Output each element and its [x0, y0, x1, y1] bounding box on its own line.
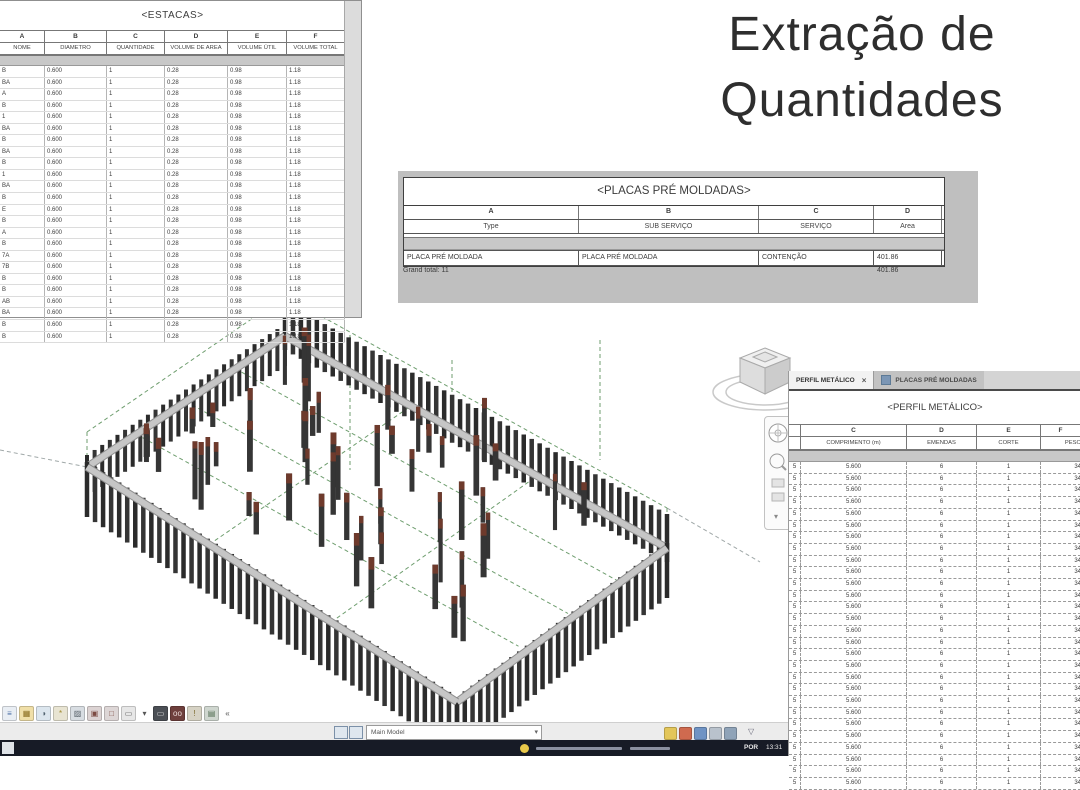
table-cell[interactable]: 0.28: [165, 124, 228, 135]
table-cell[interactable]: 5: [789, 626, 801, 637]
table-cell[interactable]: 1.18: [287, 216, 345, 227]
table-cell[interactable]: 5.600: [801, 474, 907, 485]
table-cell[interactable]: 1: [107, 112, 165, 123]
table-cell[interactable]: 6: [907, 778, 977, 789]
table-cell[interactable]: 1.18: [287, 285, 345, 296]
column-header[interactable]: VOLUME ÚTIL: [228, 43, 287, 54]
table-cell[interactable]: 1: [977, 614, 1041, 625]
table-cell[interactable]: 6: [907, 766, 977, 777]
table-cell[interactable]: BA: [0, 181, 45, 192]
table-row[interactable]: 55.6006134: [789, 532, 1080, 544]
table-cell[interactable]: 1.18: [287, 89, 345, 100]
table-cell[interactable]: 0.98: [228, 112, 287, 123]
table-row[interactable]: 55.6006134: [789, 567, 1080, 579]
table-row[interactable]: 55.6006134: [789, 684, 1080, 696]
table-cell[interactable]: 5.600: [801, 649, 907, 660]
table-cell[interactable]: 1.18: [287, 181, 345, 192]
table-cell[interactable]: 5.600: [801, 661, 907, 672]
table-cell[interactable]: 34: [1041, 778, 1080, 789]
tab-perfil-metalico[interactable]: PERFIL METÁLICO ×: [789, 371, 874, 389]
table-cell[interactable]: 6: [907, 591, 977, 602]
table-cell[interactable]: 6: [907, 602, 977, 613]
table-cell[interactable]: 0.600: [45, 66, 107, 77]
table-cell[interactable]: 0.98: [228, 101, 287, 112]
table-cell[interactable]: 5.600: [801, 591, 907, 602]
table-cell[interactable]: 34: [1041, 638, 1080, 649]
table-cell[interactable]: 6: [907, 474, 977, 485]
table-cell[interactable]: 6: [907, 521, 977, 532]
table-cell[interactable]: 5.600: [801, 696, 907, 707]
table-cell[interactable]: 5.600: [801, 497, 907, 508]
table-row[interactable]: 55.6006134: [789, 579, 1080, 591]
table-cell[interactable]: 5.600: [801, 485, 907, 496]
table-row[interactable]: B0.60010.280.981.18: [0, 332, 345, 344]
table-cell[interactable]: 7B: [0, 262, 45, 273]
table-cell[interactable]: 6: [907, 673, 977, 684]
table-cell[interactable]: 34: [1041, 649, 1080, 660]
table-cell[interactable]: 0.600: [45, 228, 107, 239]
table-row[interactable]: BA0.60010.280.981.18: [0, 124, 345, 136]
table-cell[interactable]: B: [0, 239, 45, 250]
table-cell[interactable]: 5.600: [801, 544, 907, 555]
table-cell[interactable]: 6: [907, 708, 977, 719]
table-cell[interactable]: 0.98: [228, 320, 287, 331]
table-cell[interactable]: 1: [977, 544, 1041, 555]
table-cell[interactable]: 0.28: [165, 308, 228, 319]
table-row[interactable]: B0.60010.280.981.18: [0, 66, 345, 78]
table-cell[interactable]: 0.600: [45, 205, 107, 216]
table-cell[interactable]: 1.18: [287, 170, 345, 181]
tab-placas-pre-moldadas[interactable]: PLACAS PRÉ MOLDADAS: [874, 371, 983, 389]
table-cell[interactable]: 0.600: [45, 124, 107, 135]
table-cell[interactable]: 34: [1041, 532, 1080, 543]
table-cell[interactable]: 34: [1041, 743, 1080, 754]
column-header[interactable]: SUB SERVIÇO: [579, 220, 759, 233]
table-cell[interactable]: AB: [0, 297, 45, 308]
table-cell[interactable]: 5.600: [801, 731, 907, 742]
column-header[interactable]: SERVIÇO: [759, 220, 874, 233]
table-cell[interactable]: 0.28: [165, 297, 228, 308]
table-cell[interactable]: 5: [789, 579, 801, 590]
table-cell[interactable]: 0.28: [165, 170, 228, 181]
shadows-icon[interactable]: ▨: [70, 706, 85, 721]
table-cell[interactable]: 0.600: [45, 193, 107, 204]
table-cell[interactable]: 5.600: [801, 509, 907, 520]
table-cell[interactable]: 6: [907, 485, 977, 496]
table-cell[interactable]: 0.98: [228, 78, 287, 89]
table-cell[interactable]: 1.18: [287, 297, 345, 308]
table-cell[interactable]: 5.600: [801, 462, 907, 473]
table-cell[interactable]: 1: [107, 285, 165, 296]
sun-path-icon[interactable]: *: [53, 706, 68, 721]
table-cell[interactable]: 1: [977, 708, 1041, 719]
table-cell[interactable]: 1: [977, 497, 1041, 508]
table-cell[interactable]: 5: [789, 778, 801, 789]
table-cell[interactable]: 1.18: [287, 274, 345, 285]
table-row[interactable]: 55.6006134: [789, 755, 1080, 767]
table-cell[interactable]: 34: [1041, 766, 1080, 777]
table-cell[interactable]: 1.18: [287, 124, 345, 135]
table-cell[interactable]: 0.28: [165, 112, 228, 123]
table-cell[interactable]: 0.28: [165, 239, 228, 250]
table-row[interactable]: B0.60010.280.981.18: [0, 216, 345, 228]
table-cell[interactable]: 1.18: [287, 112, 345, 123]
table-cell[interactable]: 6: [907, 661, 977, 672]
table-row[interactable]: BA0.60010.280.981.18: [0, 147, 345, 159]
table-cell[interactable]: 1: [107, 251, 165, 262]
table-cell[interactable]: 1.18: [287, 262, 345, 273]
table-cell[interactable]: 5: [789, 462, 801, 473]
table-cell[interactable]: B: [0, 193, 45, 204]
table-row[interactable]: 55.6006134: [789, 614, 1080, 626]
table-row[interactable]: A0.60010.280.981.18: [0, 89, 345, 101]
table-cell[interactable]: 0.98: [228, 228, 287, 239]
rendering-dialog-icon[interactable]: ▣: [87, 706, 102, 721]
table-cell[interactable]: B: [0, 320, 45, 331]
table-cell[interactable]: B: [0, 274, 45, 285]
table-cell[interactable]: 7A: [0, 251, 45, 262]
table-cell[interactable]: 1: [107, 147, 165, 158]
table-cell[interactable]: 5: [789, 474, 801, 485]
table-cell[interactable]: 0.28: [165, 89, 228, 100]
table-cell[interactable]: 1: [107, 205, 165, 216]
design-options-icon[interactable]: [679, 727, 692, 740]
table-cell[interactable]: 5.600: [801, 766, 907, 777]
table-cell[interactable]: 5: [789, 719, 801, 730]
table-cell[interactable]: 5: [789, 509, 801, 520]
table-cell[interactable]: 5.600: [801, 684, 907, 695]
table-row[interactable]: 7A0.60010.280.981.18: [0, 251, 345, 263]
table-cell[interactable]: 34: [1041, 521, 1080, 532]
table-cell[interactable]: 6: [907, 497, 977, 508]
table-cell[interactable]: 1: [107, 320, 165, 331]
table-cell[interactable]: 0.28: [165, 285, 228, 296]
table-cell[interactable]: 6: [907, 567, 977, 578]
table-cell[interactable]: B: [0, 135, 45, 146]
table-cell[interactable]: 6: [907, 556, 977, 567]
table-cell[interactable]: 34: [1041, 544, 1080, 555]
table-cell[interactable]: 1: [107, 101, 165, 112]
table-cell[interactable]: 0.600: [45, 170, 107, 181]
show-crop-region-icon[interactable]: ▭: [121, 706, 136, 721]
table-cell[interactable]: 5: [789, 591, 801, 602]
table-cell[interactable]: B: [0, 66, 45, 77]
table-cell[interactable]: 0.600: [45, 285, 107, 296]
table-cell[interactable]: 1.18: [287, 205, 345, 216]
table-cell[interactable]: 1.18: [287, 193, 345, 204]
table-cell[interactable]: 1: [107, 135, 165, 146]
table-cell[interactable]: 5.600: [801, 567, 907, 578]
table-cell[interactable]: 5: [789, 485, 801, 496]
table-cell[interactable]: 6: [907, 544, 977, 555]
table-cell[interactable]: 0.28: [165, 216, 228, 227]
table-cell[interactable]: 34: [1041, 626, 1080, 637]
table-cell[interactable]: 1: [977, 626, 1041, 637]
column-header[interactable]: Type: [404, 220, 579, 233]
table-cell[interactable]: 5: [789, 766, 801, 777]
table-cell[interactable]: 34: [1041, 684, 1080, 695]
table-cell[interactable]: 1: [977, 556, 1041, 567]
column-header[interactable]: VOLUME DE AREA: [165, 43, 228, 54]
table-cell[interactable]: 1: [107, 124, 165, 135]
table-row[interactable]: 10.60010.280.981.18: [0, 112, 345, 124]
table-cell[interactable]: 0.98: [228, 181, 287, 192]
table-cell[interactable]: 1: [107, 228, 165, 239]
table-cell[interactable]: 1: [977, 719, 1041, 730]
table-cell[interactable]: 5: [789, 567, 801, 578]
table-cell[interactable]: 1: [977, 649, 1041, 660]
table-cell[interactable]: A: [0, 228, 45, 239]
table-cell[interactable]: 5: [789, 532, 801, 543]
table-cell[interactable]: 1: [977, 731, 1041, 742]
table-row[interactable]: B0.60010.280.981.18: [0, 135, 345, 147]
orbit-icon[interactable]: [772, 493, 784, 501]
table-cell[interactable]: 0.600: [45, 158, 107, 169]
table-row[interactable]: 10.60010.280.981.18: [0, 170, 345, 182]
table-cell[interactable]: 34: [1041, 614, 1080, 625]
table-cell[interactable]: 0.600: [45, 147, 107, 158]
exclusions-icon[interactable]: [709, 727, 722, 740]
table-cell[interactable]: 0.28: [165, 66, 228, 77]
crop-view-icon[interactable]: □: [104, 706, 119, 721]
table-cell[interactable]: 1: [107, 297, 165, 308]
table-cell[interactable]: 1: [977, 638, 1041, 649]
table-row[interactable]: 55.6006134: [789, 521, 1080, 533]
table-cell[interactable]: 5.600: [801, 602, 907, 613]
table-cell[interactable]: 34: [1041, 509, 1080, 520]
table-row[interactable]: B0.60010.280.981.18: [0, 285, 345, 297]
table-cell[interactable]: 1: [977, 743, 1041, 754]
table-cell[interactable]: 1: [977, 684, 1041, 695]
table-cell[interactable]: 0.28: [165, 274, 228, 285]
table-cell[interactable]: 1.18: [287, 101, 345, 112]
table-cell[interactable]: 1: [977, 778, 1041, 789]
table-cell[interactable]: BA: [0, 147, 45, 158]
table-cell[interactable]: 0.28: [165, 332, 228, 343]
table-cell[interactable]: 0.98: [228, 205, 287, 216]
3d-model-view[interactable]: [0, 300, 800, 730]
table-row[interactable]: B0.60010.280.981.18: [0, 320, 345, 332]
estacas-column-headers[interactable]: NOMEDIAMETROQUANTIDADEVOLUME DE AREAVOLU…: [0, 43, 345, 55]
table-cell[interactable]: 0.28: [165, 193, 228, 204]
table-row[interactable]: 55.6006134: [789, 638, 1080, 650]
table-row[interactable]: 55.6006134: [789, 591, 1080, 603]
table-cell[interactable]: 0.98: [228, 262, 287, 273]
table-cell[interactable]: BA: [0, 308, 45, 319]
table-cell[interactable]: 0.98: [228, 66, 287, 77]
table-cell[interactable]: 5: [789, 755, 801, 766]
table-row[interactable]: 55.6006134: [789, 556, 1080, 568]
table-cell[interactable]: 5: [789, 614, 801, 625]
table-cell[interactable]: 1: [977, 567, 1041, 578]
scale-icon[interactable]: ≡: [2, 706, 17, 721]
link-monitor-icon[interactable]: [694, 727, 707, 740]
table-cell[interactable]: 5.600: [801, 638, 907, 649]
table-cell[interactable]: 6: [907, 579, 977, 590]
table-cell[interactable]: 0.600: [45, 89, 107, 100]
table-cell[interactable]: 6: [907, 462, 977, 473]
column-header[interactable]: CORTE: [977, 437, 1041, 449]
table-cell[interactable]: 1: [977, 485, 1041, 496]
table-row[interactable]: 55.6006134: [789, 766, 1080, 778]
table-cell[interactable]: 6: [907, 638, 977, 649]
table-cell[interactable]: 5: [789, 649, 801, 660]
table-row[interactable]: 55.6006134: [789, 708, 1080, 720]
collapse-bar-icon[interactable]: «: [221, 707, 234, 720]
table-cell[interactable]: 5: [789, 556, 801, 567]
table-row[interactable]: BA0.60010.280.981.18: [0, 181, 345, 193]
table-cell[interactable]: B: [0, 332, 45, 343]
table-cell[interactable]: 0.600: [45, 308, 107, 319]
table-cell[interactable]: 1.18: [287, 308, 345, 319]
table-cell[interactable]: A: [0, 89, 45, 100]
table-cell[interactable]: 1: [0, 112, 45, 123]
table-cell[interactable]: 6: [907, 731, 977, 742]
table-cell[interactable]: 34: [1041, 602, 1080, 613]
table-row[interactable]: AB0.60010.280.981.18: [0, 297, 345, 309]
table-cell[interactable]: 1.18: [287, 158, 345, 169]
column-header[interactable]: EMENDAS: [907, 437, 977, 449]
table-cell[interactable]: 1: [977, 602, 1041, 613]
table-cell[interactable]: 6: [907, 509, 977, 520]
column-header[interactable]: NOME: [0, 43, 45, 54]
pan-icon[interactable]: [772, 479, 784, 487]
table-cell[interactable]: B: [0, 216, 45, 227]
table-cell[interactable]: 5.600: [801, 556, 907, 567]
table-cell[interactable]: BA: [0, 78, 45, 89]
table-cell[interactable]: 5: [789, 661, 801, 672]
table-cell[interactable]: 0.28: [165, 78, 228, 89]
table-cell[interactable]: 5: [789, 684, 801, 695]
table-row[interactable]: 55.6006134: [789, 485, 1080, 497]
table-cell[interactable]: 0.98: [228, 332, 287, 343]
table-cell[interactable]: 0.600: [45, 297, 107, 308]
table-cell[interactable]: 5.600: [801, 743, 907, 754]
table-cell[interactable]: 5: [789, 673, 801, 684]
table-cell[interactable]: 1: [977, 474, 1041, 485]
table-cell[interactable]: 5.600: [801, 626, 907, 637]
table-cell[interactable]: 1: [107, 239, 165, 250]
table-cell[interactable]: 1: [977, 591, 1041, 602]
table-cell[interactable]: 0.28: [165, 228, 228, 239]
table-cell[interactable]: 0.98: [228, 251, 287, 262]
table-cell[interactable]: 0.600: [45, 101, 107, 112]
column-header[interactable]: VOLUME TOTAL: [287, 43, 345, 54]
table-cell[interactable]: 1: [977, 521, 1041, 532]
table-cell[interactable]: 34: [1041, 497, 1080, 508]
table-cell[interactable]: 0.98: [228, 193, 287, 204]
table-cell[interactable]: 1.18: [287, 78, 345, 89]
table-cell[interactable]: 5.600: [801, 532, 907, 543]
table-cell[interactable]: 0.600: [45, 262, 107, 273]
table-cell[interactable]: 5.600: [801, 614, 907, 625]
view-dropdown-arrow-icon[interactable]: ▾: [138, 707, 151, 720]
table-cell[interactable]: 1: [977, 766, 1041, 777]
table-cell[interactable]: 1: [107, 332, 165, 343]
table-row[interactable]: BA0.60010.280.981.18: [0, 308, 345, 320]
table-cell[interactable]: 5.600: [801, 708, 907, 719]
table-cell[interactable]: 1: [107, 274, 165, 285]
table-cell[interactable]: 34: [1041, 708, 1080, 719]
active-design-option-select[interactable]: Main Model ▾: [366, 725, 542, 740]
table-cell[interactable]: 5: [789, 708, 801, 719]
table-cell[interactable]: 6: [907, 614, 977, 625]
table-cell[interactable]: 6: [907, 626, 977, 637]
cascade-windows-icon[interactable]: [349, 726, 363, 739]
table-cell[interactable]: 34: [1041, 485, 1080, 496]
table-cell[interactable]: 1: [107, 170, 165, 181]
table-cell[interactable]: 1.18: [287, 332, 345, 343]
table-cell[interactable]: 1: [107, 216, 165, 227]
table-cell[interactable]: 1: [107, 181, 165, 192]
table-cell[interactable]: 34: [1041, 731, 1080, 742]
table-cell[interactable]: 1.18: [287, 251, 345, 262]
table-cell[interactable]: B: [0, 285, 45, 296]
table-row[interactable]: 55.6006134: [789, 544, 1080, 556]
table-cell[interactable]: 5: [789, 731, 801, 742]
visual-style-icon[interactable]: ◑: [36, 706, 51, 721]
table-cell[interactable]: 0.600: [45, 251, 107, 262]
table-cell[interactable]: 1: [107, 78, 165, 89]
table-cell[interactable]: 0.98: [228, 158, 287, 169]
table-row[interactable]: 55.6006134: [789, 673, 1080, 685]
table-cell[interactable]: 34: [1041, 719, 1080, 730]
table-cell[interactable]: 6: [907, 684, 977, 695]
table-row[interactable]: 55.6006134: [789, 474, 1080, 486]
language-indicator[interactable]: POR: [744, 744, 758, 751]
table-cell[interactable]: 6: [907, 649, 977, 660]
table-cell[interactable]: 1.18: [287, 147, 345, 158]
table-cell[interactable]: 0.98: [228, 170, 287, 181]
table-row[interactable]: 55.6006134: [789, 696, 1080, 708]
detail-level-icon[interactable]: ▦: [19, 706, 34, 721]
filter-icon[interactable]: ▽: [748, 727, 754, 736]
table-cell[interactable]: 0.600: [45, 181, 107, 192]
table-cell[interactable]: 0.98: [228, 147, 287, 158]
table-cell[interactable]: 1: [0, 170, 45, 181]
column-header[interactable]: COMPRIMENTO (m): [801, 437, 907, 449]
table-cell[interactable]: E: [0, 205, 45, 216]
table-row[interactable]: B0.60010.280.981.18: [0, 193, 345, 205]
table-cell[interactable]: 0.98: [228, 297, 287, 308]
table-cell[interactable]: 1: [107, 158, 165, 169]
table-cell[interactable]: 5: [789, 602, 801, 613]
table-cell[interactable]: 1.18: [287, 239, 345, 250]
table-cell[interactable]: 0.600: [45, 274, 107, 285]
table-cell[interactable]: 0.28: [165, 101, 228, 112]
table-row[interactable]: 55.6006134: [789, 602, 1080, 614]
column-header[interactable]: PESO: [1041, 437, 1080, 449]
table-cell[interactable]: 0.98: [228, 89, 287, 100]
table-cell[interactable]: 34: [1041, 661, 1080, 672]
table-cell[interactable]: 34: [1041, 673, 1080, 684]
table-cell[interactable]: 5.600: [801, 778, 907, 789]
press-drag-icon[interactable]: [724, 727, 737, 740]
table-cell[interactable]: 1: [977, 462, 1041, 473]
table-row[interactable]: 55.6006134: [789, 719, 1080, 731]
table-cell[interactable]: 0.98: [228, 216, 287, 227]
table-row[interactable]: 55.6006134: [789, 509, 1080, 521]
table-cell[interactable]: 0.98: [228, 239, 287, 250]
table-cell[interactable]: 1: [977, 509, 1041, 520]
temporary-hide-isolate-icon[interactable]: oo: [170, 706, 185, 721]
column-header[interactable]: QUANTIDADE: [107, 43, 165, 54]
table-cell[interactable]: 0.28: [165, 251, 228, 262]
table-cell[interactable]: 34: [1041, 591, 1080, 602]
table-row[interactable]: 7B0.60010.280.981.18: [0, 262, 345, 274]
table-cell[interactable]: 5: [789, 497, 801, 508]
table-row[interactable]: 55.6006134: [789, 626, 1080, 638]
